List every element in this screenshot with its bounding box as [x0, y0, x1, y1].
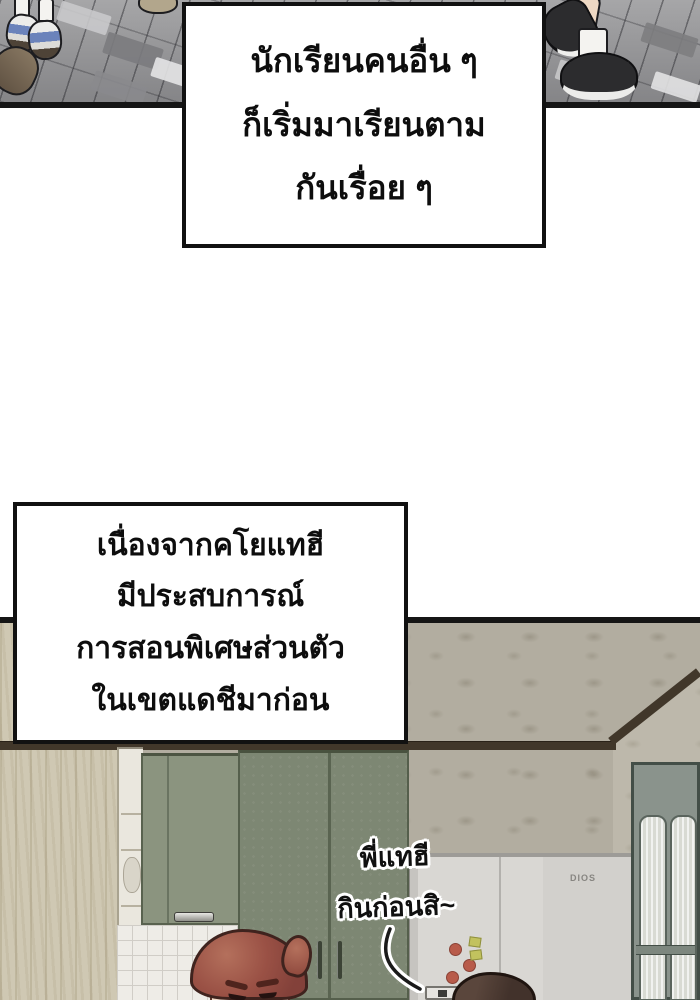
fridge-magnet — [446, 971, 459, 984]
narration-line: การสอนพิเศษส่วนตัว — [76, 629, 345, 669]
narration-box-2: เนื่องจากคโยแทฮี มีประสบการณ์ การสอนพิเศ… — [13, 502, 408, 744]
narration-box-1: นักเรียนคนอื่น ๆ ก็เริ่มมาเรียนตาม กันเร… — [182, 2, 546, 248]
glass-door — [631, 762, 700, 1000]
shelf-line — [121, 905, 141, 907]
cabinet-handle — [174, 912, 214, 922]
upper-cabinet — [141, 753, 240, 925]
door-glass-pane — [670, 815, 697, 1000]
white-shelf-unit — [117, 747, 143, 925]
fridge-brand-label: DIOS — [570, 873, 626, 883]
speech-tail — [376, 925, 428, 993]
fridge-magnet — [468, 936, 481, 948]
shelf-jar — [123, 857, 141, 893]
door-muntin-bar — [636, 945, 695, 955]
speech-text: พี่แทฮี กินก่อนสิ~ — [316, 830, 474, 935]
cabinet-handle — [337, 941, 342, 979]
comic-page: นักเรียนคนอื่น ๆ ก็เริ่มมาเรียนตาม กันเร… — [0, 0, 700, 1000]
outlet-socket — [438, 990, 447, 997]
cabinet-panel-line — [167, 756, 169, 923]
fridge-magnet — [463, 959, 476, 972]
narration-line: ในเขตแดชีมาก่อน — [92, 681, 330, 721]
narration-line: นักเรียนคนอื่น ๆ — [250, 40, 477, 83]
narration-line: มีประสบการณ์ — [117, 577, 304, 617]
door-glass-pane — [639, 815, 667, 1000]
narration-line: เนื่องจากคโยแทฮี — [97, 526, 324, 566]
shelf-line — [121, 849, 141, 851]
shelf-line — [121, 813, 141, 815]
narration-line: ก็เริ่มมาเรียนตาม — [242, 104, 486, 147]
cabinet-handle — [317, 941, 322, 979]
fridge-magnet — [449, 943, 462, 956]
narration-line: กันเรื่อย ๆ — [295, 167, 433, 210]
fridge-magnet — [469, 949, 482, 960]
speech-line: พี่แทฮี — [316, 830, 473, 885]
right-walker-black-sneaker — [560, 52, 638, 100]
left-walker-sock — [38, 0, 54, 22]
